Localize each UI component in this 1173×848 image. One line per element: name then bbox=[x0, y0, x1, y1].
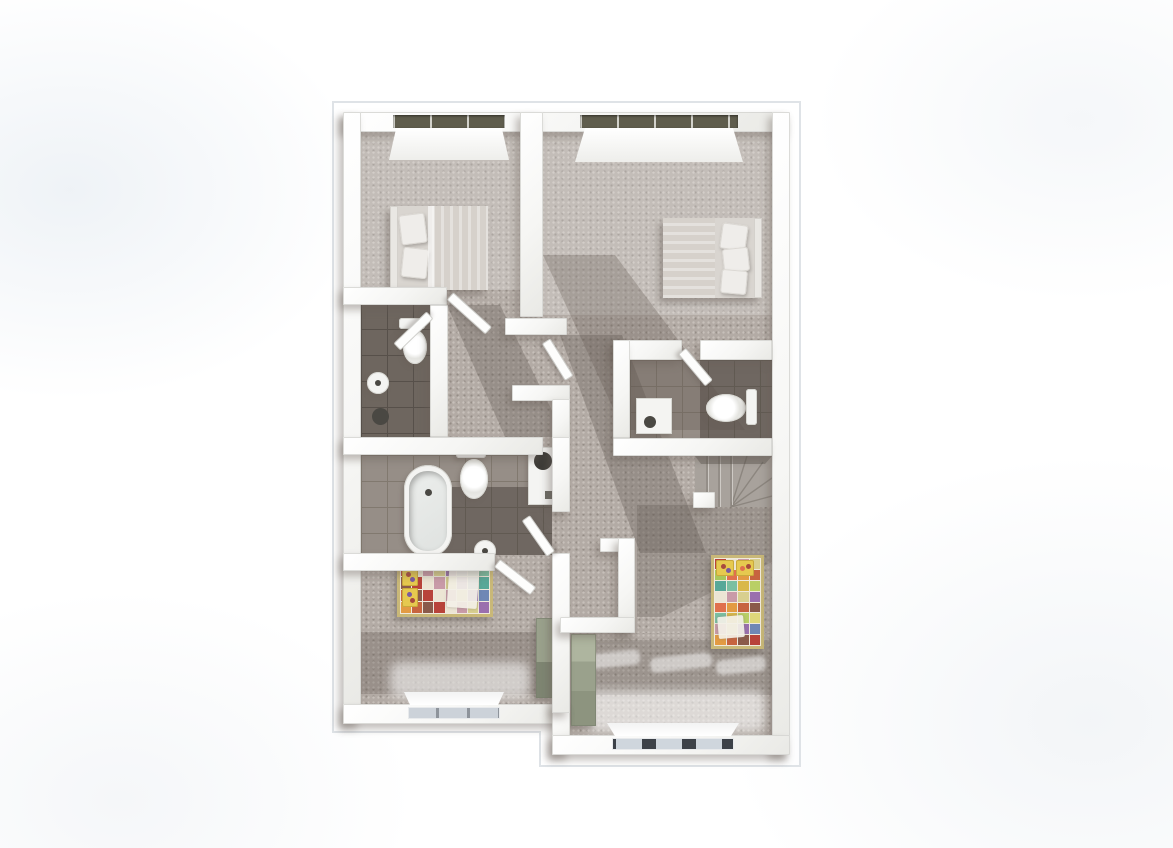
double-bed-right bbox=[663, 218, 762, 298]
wall-exterior-right bbox=[772, 112, 790, 755]
wall-stairwell-top bbox=[613, 438, 772, 456]
right-bathroom-shower-tray bbox=[636, 398, 672, 434]
wall-right-bathroom-top-right bbox=[700, 340, 772, 360]
window-top-left-reveal bbox=[389, 128, 509, 160]
wardrobe-entry bbox=[571, 634, 596, 726]
double-bed-left bbox=[390, 206, 488, 290]
bathroom-toilet-bowl bbox=[460, 459, 488, 499]
wall-hall-stub-mid-leg bbox=[552, 399, 570, 439]
wall-right-bathroom-left bbox=[613, 340, 630, 438]
kids-bed-right-pillow-1 bbox=[716, 560, 734, 576]
window-top-left bbox=[393, 115, 505, 128]
wall-bathroom-top bbox=[343, 437, 543, 455]
wall-wc-right bbox=[430, 305, 448, 437]
bathtub-drain bbox=[425, 489, 432, 496]
stair-newel-wall bbox=[693, 492, 715, 508]
window-top-right-reveal bbox=[575, 128, 743, 162]
wall-bedroom-left-bottom bbox=[343, 287, 447, 305]
window-bottom-left-reveal bbox=[404, 692, 504, 705]
bed-left-pillow-2 bbox=[401, 247, 430, 280]
kids-bed-right bbox=[711, 555, 764, 649]
window-top-right bbox=[580, 115, 738, 128]
wall-bathroom-right bbox=[552, 437, 570, 512]
wall-vestibule-stub-top bbox=[505, 318, 567, 335]
oval-bathtub bbox=[404, 465, 452, 557]
right-bathroom-toilet-bowl bbox=[706, 394, 746, 422]
bed-left-duvet bbox=[432, 206, 488, 290]
window-bottom-right bbox=[612, 738, 734, 750]
wardrobe-kids-room bbox=[536, 618, 553, 698]
bed-right-duvet bbox=[663, 218, 715, 298]
bed-left-headboard bbox=[390, 206, 398, 290]
kids-bed-right-sheet bbox=[717, 615, 745, 639]
wall-exterior-left bbox=[343, 112, 361, 724]
wall-bedroom-divider bbox=[520, 112, 543, 317]
right-shower-drain bbox=[644, 416, 656, 428]
wc-waste-bin bbox=[372, 408, 389, 425]
wall-entry-horizontal bbox=[560, 617, 635, 633]
right-bathroom-toilet-tank bbox=[746, 389, 757, 425]
wall-kids-room-right bbox=[552, 553, 570, 713]
bed-right-headboard bbox=[754, 218, 762, 298]
bed-left-fold bbox=[428, 206, 434, 290]
window-bottom-left bbox=[408, 707, 500, 719]
bed-left-pillow-1 bbox=[398, 213, 427, 246]
kids-bed-right-pillow-2 bbox=[736, 560, 754, 576]
window-bottom-right-reveal bbox=[607, 723, 739, 736]
bathtub-basin bbox=[409, 471, 447, 551]
bed-right-pillow-3 bbox=[720, 269, 748, 295]
wc-sink-drain bbox=[375, 380, 381, 386]
floor-plan-render bbox=[0, 0, 1173, 848]
kids-bed-left-pillow-2 bbox=[402, 588, 418, 607]
kids-bed-left-sheet bbox=[447, 567, 480, 609]
wall-kids-room-top bbox=[343, 553, 495, 571]
